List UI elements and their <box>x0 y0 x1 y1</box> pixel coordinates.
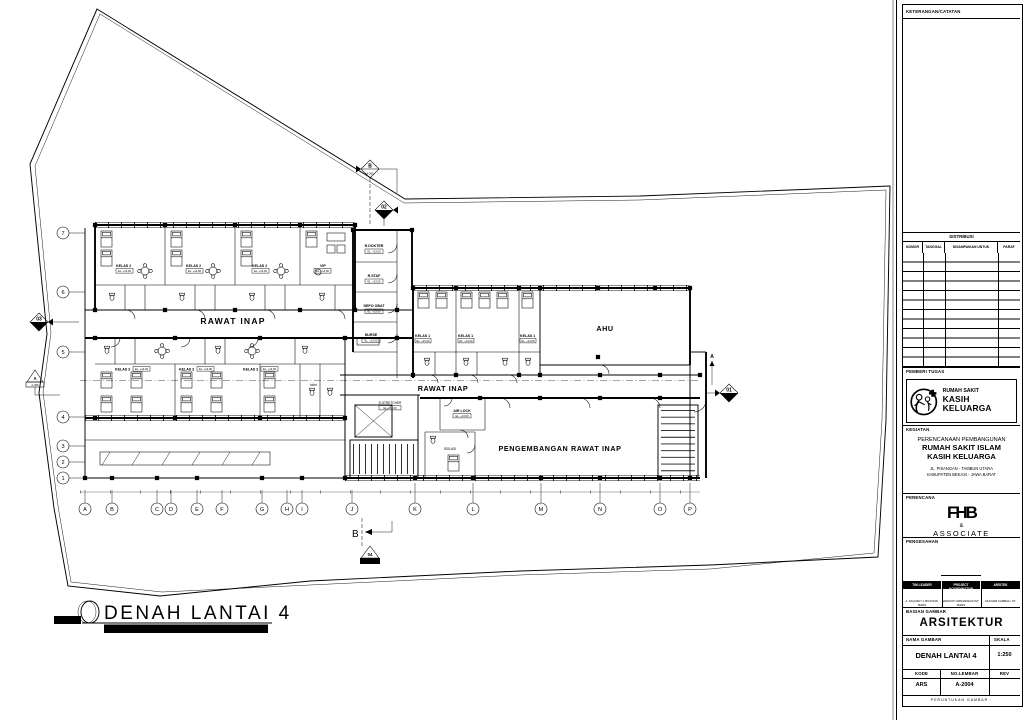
distribusi-table-rows <box>903 253 1020 368</box>
svg-text:A: A <box>710 354 714 360</box>
grid-bubble: P <box>688 507 692 513</box>
elev-tag: EL. +13.00 <box>455 414 469 418</box>
grid-lines <box>69 178 700 546</box>
grid-bubble: O <box>658 507 663 513</box>
svg-text:A-300: A-300 <box>366 560 374 564</box>
room-label-nurse: NURSE <box>365 333 378 337</box>
kode-section: KODE NO.LEMBAR REV ARS A-2004 <box>903 669 1020 696</box>
scale-note: Skala 1:250 <box>57 619 75 623</box>
room-label-r-dokter: R.DOKTER <box>365 244 384 248</box>
grid-bubble: 1 <box>61 476 64 482</box>
signature-section: TIM LEADER PROJECT KOORDINATOR ARSITEK A… <box>903 545 1020 608</box>
elev-tag: EL. +13.00 <box>254 269 268 273</box>
grid-bubble: N <box>598 507 602 513</box>
elev-tag: EL. +13.00 <box>383 406 397 410</box>
perencana-section: PERENCANA FHB & ASSOCIATE <box>903 493 1020 538</box>
floor-plan-canvas: KELAS 2 EL. +13.00 KELAS 2 EL. +13.00 KE… <box>0 0 895 720</box>
drawing-title: DENAH LANTAI 4 <box>104 603 292 624</box>
svg-text:01: 01 <box>726 388 732 394</box>
grid-bubble: 2 <box>61 460 64 466</box>
peruntukan-note: PERUNTUKAN GAMBAR : <box>903 695 1020 708</box>
elev-tag: EL. +13.00 <box>316 269 330 273</box>
elev-tag: EL. +13.00 <box>459 339 473 343</box>
grid-bubble: A <box>83 507 87 513</box>
grid-bubble: L <box>471 507 474 513</box>
room-label-isolasi: ISOLASI <box>444 447 457 451</box>
grid-bubble: E <box>195 507 199 513</box>
section-marker-b-top: B A-305 <box>356 160 397 193</box>
grid-bubble: F <box>220 507 224 513</box>
section-markers: B A-305 02 A-300 03 A-300 A A-305 <box>26 160 738 564</box>
svg-text:A-300: A-300 <box>35 325 43 329</box>
svg-text:B: B <box>368 164 372 170</box>
section-marker-a-right: A <box>710 354 715 385</box>
corridor-label-rawat-inap: RAWAT INAP <box>200 316 265 326</box>
elev-tag: EL. +13.00 <box>367 250 381 254</box>
section-marker-b-bottom: B <box>352 521 392 540</box>
svg-text:04: 04 <box>368 552 373 557</box>
room-label-pengembangan: PENGEMBANGAN RAWAT INAP <box>498 444 621 453</box>
grid-bubble: C <box>155 507 159 513</box>
title-block-panel: KETERANGAN/CATATAN DISTRIBUSI NOMOR TANG… <box>896 0 1025 720</box>
elev-tag: EL. +13.00 <box>364 339 378 343</box>
elev-tag: EL. +13.00 <box>367 310 381 314</box>
grid-bubble: 3 <box>61 444 64 450</box>
room-label-toilet: toilet <box>310 383 317 387</box>
room-label-kelas3: KELAS 3 <box>243 368 258 372</box>
room-label-ahu: AHU <box>596 324 613 333</box>
svg-text:A-300: A-300 <box>725 396 733 400</box>
grid-bubble: 6 <box>61 290 64 296</box>
corridor-label-rawat-inap-2: RAWAT INAP <box>418 384 469 393</box>
hospital-logo-box: RUMAH SAKIT KASIH KELUARGA <box>906 379 1017 423</box>
discipline-name: ARSITEKTUR <box>903 617 1020 629</box>
section-marker-02: 02 A-300 <box>375 201 398 226</box>
pemberi-tugas-section: PEMBERI TUGAS RUMAH SAKIT KASIH KELUARGA <box>903 367 1020 426</box>
svg-text:A-305: A-305 <box>366 172 374 176</box>
elev-tag: EL. +13.00 <box>263 367 277 371</box>
nama-gambar-section: NAMA GAMBAR SKALA DENAH LANTAI 4 1:250 <box>903 635 1020 670</box>
grid-bubble: G <box>260 507 264 513</box>
grid-bubble: D <box>169 507 173 513</box>
title-block-frame: KETERANGAN/CATATAN DISTRIBUSI NOMOR TANG… <box>902 4 1023 707</box>
room-labels: KELAS 2 EL. +13.00 KELAS 2 EL. +13.00 KE… <box>115 244 622 453</box>
section-marker-01: 01 A-300 <box>707 384 738 402</box>
room-label-vip: VIP <box>320 264 326 268</box>
elev-tag: EL. +13.00 <box>188 269 202 273</box>
bagian-gambar-section: BAGIAN GAMBAR ARSITEKTUR <box>903 607 1020 636</box>
sheet-number: A-2004 <box>940 682 989 688</box>
svg-text:A-300: A-300 <box>380 213 388 217</box>
sheet-scale: 1:250 <box>989 652 1020 658</box>
drawing-subtitle: RS. KASIH KELUARGA - BEKASI UTARA <box>134 627 238 633</box>
svg-text:A-305: A-305 <box>31 383 39 387</box>
grid-bubble: M <box>539 507 544 513</box>
grid-bubble: 5 <box>61 350 64 356</box>
room-label-kelas2: KELAS 2 <box>186 264 201 268</box>
elev-tag: EL. +13.00 <box>199 367 213 371</box>
room-label-r-staf: R.STAF <box>368 274 382 278</box>
room-label-depo-obat: DEPO OBAT <box>363 304 385 308</box>
room-label-kelas1: KELAS 1 <box>520 334 535 338</box>
room-label-kelas3: KELAS 3 <box>179 368 194 372</box>
room-label-kelas3: KELAS 3 <box>115 368 130 372</box>
drawing-title-block: Skala 1:250 DENAH LANTAI 4 RS. KASIH KEL… <box>54 601 292 633</box>
furniture-layer <box>101 231 533 471</box>
elev-tag: EL. +13.00 <box>135 367 149 371</box>
sheet-code: ARS <box>903 682 940 688</box>
fhb-logo: FHB <box>903 503 1020 523</box>
grid-bubble: J <box>351 507 354 513</box>
svg-text:B: B <box>352 529 359 540</box>
grid-bubble: 7 <box>61 231 64 237</box>
room-label-kelas1: KELAS 1 <box>458 334 473 338</box>
elev-tag: EL. +13.00 <box>416 339 430 343</box>
room-label-kelas1: KELAS 1 <box>415 334 430 338</box>
grid-bubble: 4 <box>61 415 64 421</box>
room-label-kelas2: KELAS 2 <box>116 264 131 268</box>
grid-bubble: B <box>110 507 114 513</box>
room-label-air-lock: AIR LOCK <box>453 409 471 413</box>
svg-text:A: A <box>33 376 36 381</box>
elev-tag: EL. +13.00 <box>118 269 132 273</box>
pengesahan-label: PENGESAHAN <box>903 537 1020 545</box>
distribusi-title: DISTRIBUSI <box>903 232 1020 242</box>
grid-bubbles: A B C D E F G H I J K L M N O P 7 6 5 4 … <box>57 227 696 515</box>
kegiatan-section: KEGIATAN PERENCANAAN PEMBANGUNAN RUMAH S… <box>903 425 1020 494</box>
doors-layer <box>111 244 706 453</box>
grid-bubble: K <box>413 507 417 513</box>
drawing-sheet: KELAS 2 EL. +13.00 KELAS 2 EL. +13.00 KE… <box>0 0 1025 720</box>
hospital-logo-icon <box>907 383 941 419</box>
elev-tag: EL. +13.00 <box>521 339 535 343</box>
notes-area <box>903 18 1020 233</box>
grid-bubble: I <box>301 507 303 513</box>
svg-text:02: 02 <box>381 205 387 211</box>
room-label-kelas2: KELAS 2 <box>252 264 267 268</box>
room-label-r-stretcher: R.STRETCHER <box>379 401 402 405</box>
elev-tag: EL. +13.00 <box>367 280 381 284</box>
section-marker-04: 04 A-300 <box>360 546 380 564</box>
svg-text:03: 03 <box>36 317 42 323</box>
section-marker-03: 03 A-300 <box>30 313 79 331</box>
walls-layer <box>85 223 706 481</box>
grid-bubble: H <box>285 507 289 513</box>
sheet-title: DENAH LANTAI 4 <box>903 651 989 660</box>
